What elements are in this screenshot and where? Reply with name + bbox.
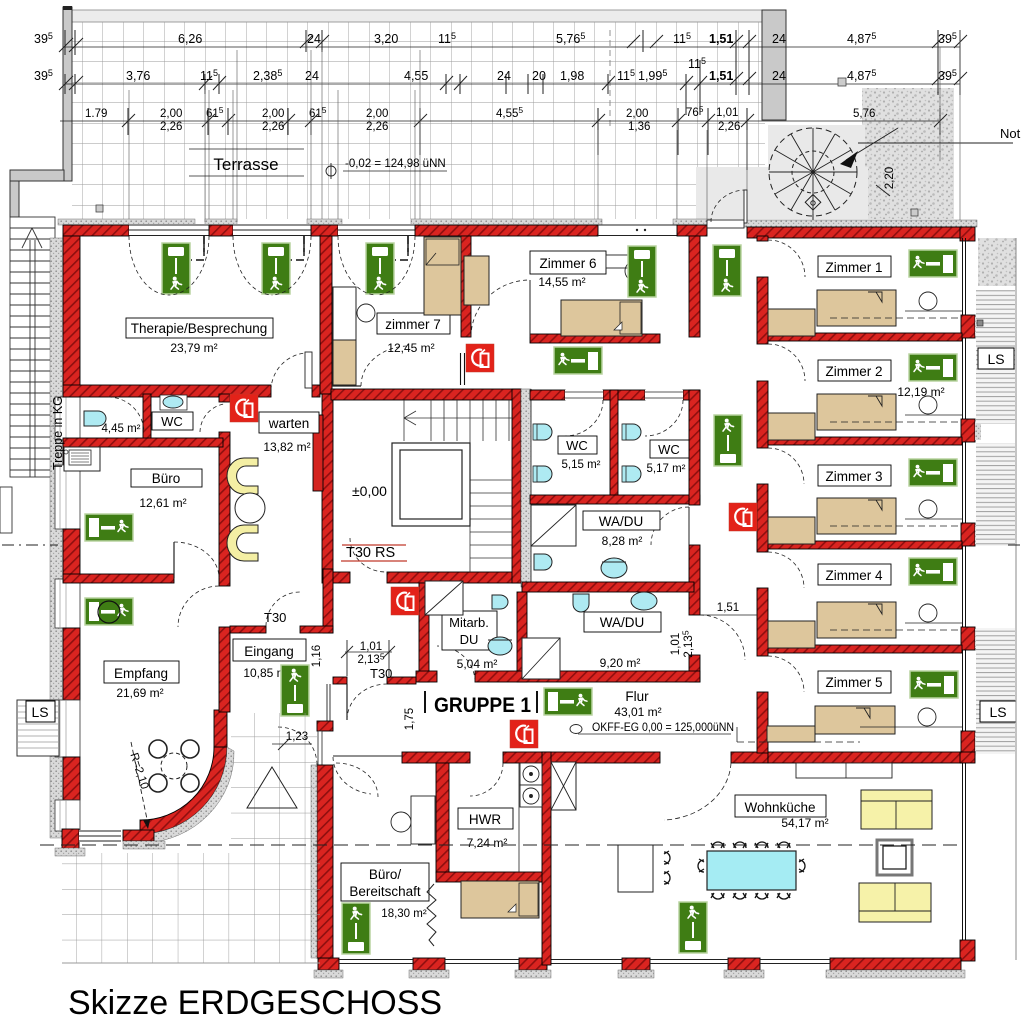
- svg-text:14,55 m²: 14,55 m²: [538, 275, 585, 289]
- svg-text:WC: WC: [566, 438, 588, 453]
- svg-text:Terrasse: Terrasse: [213, 155, 278, 174]
- svg-text:Treppe in KG: Treppe in KG: [51, 396, 65, 470]
- svg-text:2,00: 2,00: [160, 108, 182, 120]
- svg-text:WA/DU: WA/DU: [599, 514, 644, 529]
- svg-text:DU: DU: [460, 632, 479, 647]
- svg-text:1,16: 1,16: [311, 645, 323, 667]
- svg-text:13,82 m²: 13,82 m²: [263, 440, 310, 454]
- svg-text:Not: Not: [1000, 126, 1021, 141]
- svg-text:-0,02 = 124,98 üNN: -0,02 = 124,98 üNN: [345, 158, 446, 170]
- svg-text:1,98: 1,98: [560, 69, 584, 83]
- svg-text:WA/DU: WA/DU: [600, 615, 645, 630]
- svg-text:18,30 m²: 18,30 m²: [381, 908, 427, 920]
- svg-text:T30 RS: T30 RS: [346, 545, 395, 561]
- svg-text:2,26: 2,26: [160, 121, 182, 133]
- svg-text:1,23: 1,23: [286, 731, 308, 743]
- svg-text:2,26: 2,26: [262, 121, 284, 133]
- svg-text:24: 24: [772, 69, 786, 83]
- svg-text:Zimmer 6: Zimmer 6: [540, 256, 597, 271]
- svg-text:OKFF-EG 0,00 = 125,000üNN: OKFF-EG 0,00 = 125,000üNN: [592, 722, 734, 734]
- svg-text:Zimmer 3: Zimmer 3: [826, 469, 883, 484]
- svg-text:8,28 m²: 8,28 m²: [602, 534, 643, 548]
- svg-text:Flur: Flur: [625, 689, 649, 704]
- svg-text:12,61 m²: 12,61 m²: [139, 496, 186, 510]
- svg-text:3,76: 3,76: [126, 69, 150, 83]
- svg-text:Eingang: Eingang: [244, 644, 294, 659]
- svg-text:1,51: 1,51: [709, 69, 733, 83]
- svg-text:6,26: 6,26: [178, 32, 202, 46]
- svg-text:zimmer 7: zimmer 7: [385, 317, 441, 332]
- svg-text:WC: WC: [658, 442, 680, 457]
- svg-text:Büro: Büro: [152, 471, 181, 486]
- svg-text:Zimmer 4: Zimmer 4: [826, 568, 883, 583]
- svg-text:4,45 m²: 4,45 m²: [102, 423, 141, 435]
- svg-text:5,17 m²: 5,17 m²: [647, 463, 686, 475]
- svg-text:Therapie/Besprechung: Therapie/Besprechung: [131, 321, 268, 336]
- svg-text:1,51: 1,51: [709, 32, 733, 46]
- svg-text:2,00: 2,00: [262, 108, 284, 120]
- svg-text:1,51: 1,51: [717, 602, 739, 614]
- svg-text:1,01: 1,01: [670, 633, 682, 655]
- svg-text:Büro/: Büro/: [369, 867, 402, 882]
- svg-text:Bereitschaft: Bereitschaft: [349, 884, 421, 899]
- svg-text:5,04 m²: 5,04 m²: [457, 657, 498, 671]
- svg-text:7,24 m²: 7,24 m²: [467, 836, 508, 850]
- svg-text:20: 20: [532, 69, 546, 83]
- svg-text:LS: LS: [31, 704, 48, 720]
- svg-text:LS: LS: [987, 351, 1004, 367]
- svg-text:4,55: 4,55: [404, 69, 428, 83]
- svg-text:2,26: 2,26: [366, 121, 388, 133]
- svg-text:21,69 m²: 21,69 m²: [116, 686, 163, 700]
- svg-text:HWR: HWR: [469, 812, 501, 827]
- svg-text:1.79: 1.79: [85, 108, 107, 120]
- svg-text:1,01: 1,01: [716, 107, 738, 119]
- svg-text:5,76: 5,76: [853, 108, 875, 120]
- svg-text:2,00: 2,00: [626, 108, 648, 120]
- svg-text:±0,00: ±0,00: [352, 483, 387, 499]
- svg-text:12,45 m²: 12,45 m²: [387, 341, 434, 355]
- svg-text:54,17 m²: 54,17 m²: [781, 816, 828, 830]
- svg-text:Zimmer 2: Zimmer 2: [826, 364, 883, 379]
- svg-text:3,20: 3,20: [374, 32, 398, 46]
- svg-text:43,01 m²: 43,01 m²: [614, 705, 661, 719]
- svg-text:warten: warten: [268, 416, 310, 431]
- svg-text:24: 24: [305, 69, 319, 83]
- svg-text:WC: WC: [161, 414, 183, 429]
- svg-text:LS: LS: [989, 704, 1006, 720]
- svg-text:1,36: 1,36: [628, 121, 650, 133]
- svg-text:23,79 m²: 23,79 m²: [170, 341, 217, 355]
- svg-text:24: 24: [497, 69, 511, 83]
- svg-text:Mitarb.: Mitarb.: [449, 615, 489, 630]
- svg-text:GRUPPE 1: GRUPPE 1: [434, 693, 531, 717]
- svg-text:24: 24: [772, 32, 786, 46]
- svg-text:Skizze ERDGESCHOSS: Skizze ERDGESCHOSS: [68, 984, 442, 1022]
- svg-text:12,19 m²: 12,19 m²: [897, 385, 944, 399]
- svg-text:5,15 m²: 5,15 m²: [562, 459, 601, 471]
- svg-text:Zimmer 5: Zimmer 5: [826, 675, 883, 690]
- svg-text:Wohnküche: Wohnküche: [744, 800, 815, 815]
- svg-text:2,00: 2,00: [366, 108, 388, 120]
- svg-text:9,20 m²: 9,20 m²: [600, 656, 641, 670]
- svg-text:T30: T30: [264, 610, 286, 625]
- svg-text:2,20: 2,20: [884, 167, 896, 189]
- svg-text:2,26: 2,26: [718, 121, 740, 133]
- svg-text:1,01: 1,01: [360, 641, 382, 653]
- svg-text:1,75: 1,75: [404, 708, 416, 730]
- svg-text:Empfang: Empfang: [114, 666, 168, 681]
- svg-text:Zimmer 1: Zimmer 1: [826, 260, 883, 275]
